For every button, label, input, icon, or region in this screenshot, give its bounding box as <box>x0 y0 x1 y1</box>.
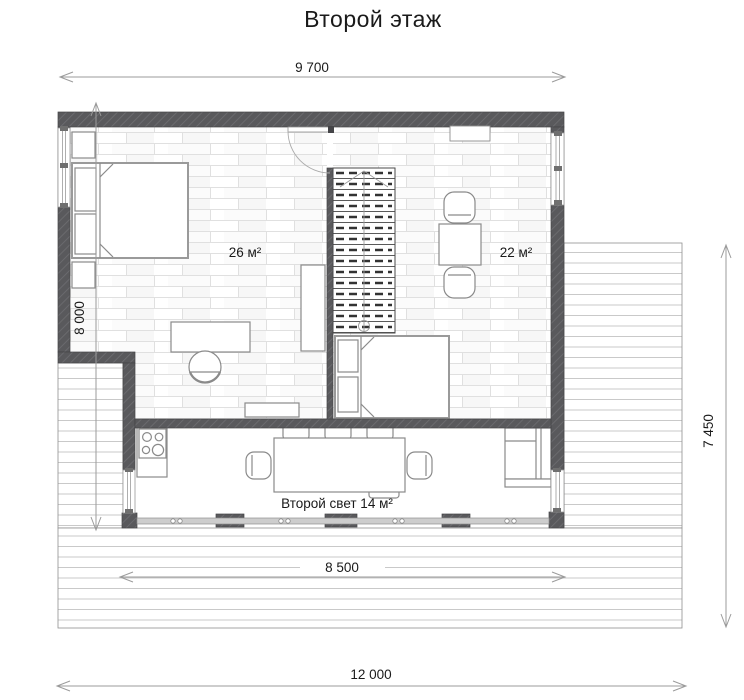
nightstand <box>72 132 95 158</box>
room-label-bedroom: 26 м² <box>229 245 262 260</box>
wall-stairs <box>327 168 333 419</box>
dim-label-bottom: 12 000 <box>350 667 391 682</box>
glazing-band <box>137 518 549 524</box>
dim-label-top: 9 700 <box>295 60 329 75</box>
door-leaf <box>288 127 330 132</box>
wall-interior <box>135 419 551 428</box>
deck-bottom <box>58 528 682 628</box>
table <box>439 224 481 265</box>
desk <box>171 322 250 352</box>
study-furniture <box>439 192 481 298</box>
window-kitchen <box>123 468 135 513</box>
door-hinge <box>328 126 334 133</box>
wall-kitchen-left <box>123 363 135 470</box>
window-left <box>58 126 70 208</box>
dim-right <box>721 245 731 627</box>
room-label-second-light: Второй свет 14 м² <box>281 496 393 511</box>
sofa <box>505 428 551 479</box>
stove-burner <box>142 446 149 453</box>
room-label-study: 22 м² <box>500 245 533 260</box>
corner-post-right <box>549 512 564 528</box>
pillow <box>338 340 358 372</box>
deck-left <box>58 363 123 528</box>
sofa-ledge <box>505 479 551 487</box>
floor-plan-canvas: 9 700 8 000 7 450 8 500 12 000 26 м² 22 … <box>0 0 744 700</box>
dim-label-right: 7 450 <box>701 414 716 448</box>
wall-niche <box>450 126 490 141</box>
wardrobe <box>301 265 325 351</box>
window-right-upper <box>551 131 564 205</box>
dining-chair-right <box>407 452 432 479</box>
deck-right <box>564 243 682 528</box>
dim-bottom <box>57 681 686 691</box>
stove-burner <box>152 444 163 455</box>
tv-stand <box>245 403 299 417</box>
corner-post-left <box>122 513 137 528</box>
window-right-lower <box>551 468 564 512</box>
page-title: Второй этаж <box>304 6 442 32</box>
dim-label-terrace: 8 500 <box>325 560 359 575</box>
chair <box>444 192 475 223</box>
nook-furniture <box>335 336 449 418</box>
wall-top <box>58 112 564 127</box>
floor-plan-page: 9 700 8 000 7 450 8 500 12 000 26 м² 22 … <box>0 0 744 700</box>
chair <box>444 267 475 298</box>
nightstand <box>72 262 95 288</box>
pillow <box>75 214 96 254</box>
stove-burner <box>143 433 152 442</box>
dining-table <box>274 438 405 492</box>
dining-chair-left <box>246 452 271 479</box>
dim-label-left: 8 000 <box>72 301 87 335</box>
glazing-rail <box>137 518 549 524</box>
pillow <box>338 377 358 412</box>
pillow <box>75 168 96 211</box>
stove-burner <box>155 433 163 441</box>
staircase <box>333 168 395 333</box>
